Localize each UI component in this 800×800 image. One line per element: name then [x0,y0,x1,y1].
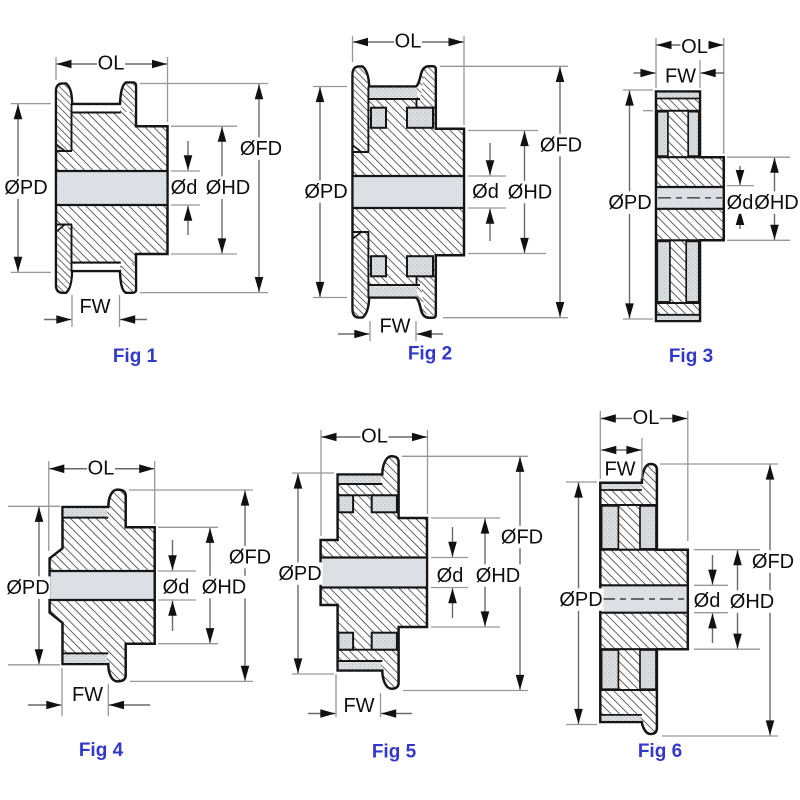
svg-text:ØFD: ØFD [752,551,794,573]
svg-text:Fig 2: Fig 2 [408,344,452,365]
svg-text:ØPD: ØPD [6,577,49,599]
svg-text:FW: FW [604,459,635,481]
svg-text:OL: OL [361,426,388,448]
svg-text:Fig 5: Fig 5 [372,742,417,763]
svg-text:Ød: Ød [472,181,499,203]
svg-text:ØHD: ØHD [508,182,552,204]
svg-text:OL: OL [633,407,660,429]
svg-text:Ød: Ød [694,590,721,612]
svg-text:ØHD: ØHD [754,192,798,214]
svg-text:ØHD: ØHD [202,577,246,599]
svg-text:ØHD: ØHD [476,565,520,587]
svg-text:ØFD: ØFD [540,135,582,157]
svg-text:Ød: Ød [727,192,754,214]
svg-text:ØPD: ØPD [278,563,321,585]
svg-text:FW: FW [343,695,374,717]
svg-text:Ød: Ød [171,177,198,199]
svg-text:ØFD: ØFD [501,527,543,549]
svg-text:Ød: Ød [163,577,190,599]
svg-text:ØPD: ØPD [608,192,651,214]
svg-text:FW: FW [72,684,103,706]
svg-text:OL: OL [395,31,422,53]
svg-text:Fig 3: Fig 3 [669,346,713,367]
svg-text:OL: OL [88,457,115,479]
svg-text:Ød: Ød [437,565,464,587]
svg-text:ØPD: ØPD [4,177,47,199]
svg-text:Fig 6: Fig 6 [638,741,682,762]
svg-text:ØHD: ØHD [206,177,250,199]
svg-text:FW: FW [665,66,696,88]
svg-text:ØHD: ØHD [730,591,774,613]
svg-text:ØPD: ØPD [304,181,347,203]
svg-text:ØPD: ØPD [559,589,602,611]
svg-text:OL: OL [98,53,125,75]
svg-text:FW: FW [79,296,110,318]
svg-text:ØFD: ØFD [240,138,282,160]
svg-text:FW: FW [379,316,410,338]
svg-text:OL: OL [681,36,708,58]
svg-text:ØFD: ØFD [229,547,271,569]
svg-text:Fig 1: Fig 1 [113,346,158,367]
svg-text:Fig 4: Fig 4 [79,740,124,761]
